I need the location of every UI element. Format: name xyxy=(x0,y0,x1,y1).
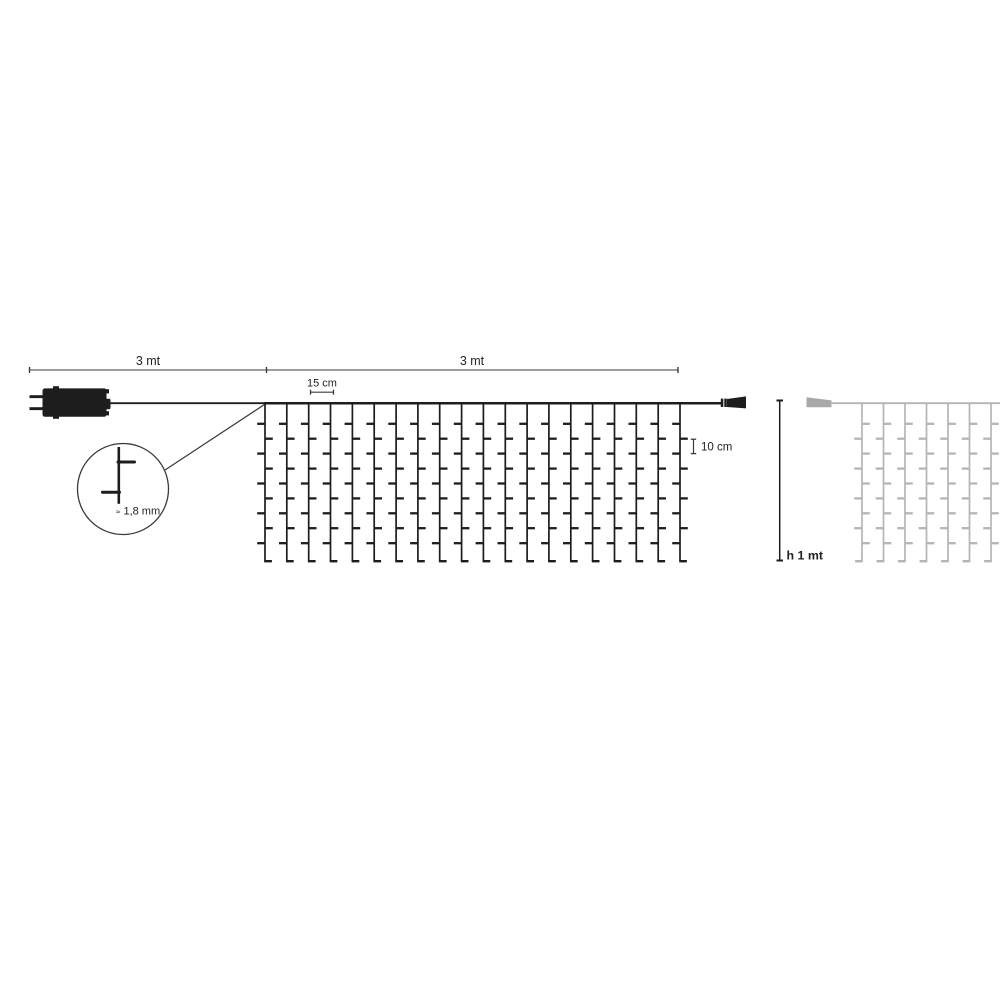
svg-text:h 1 mt: h 1 mt xyxy=(787,549,824,563)
svg-text:15 cm: 15 cm xyxy=(307,378,337,390)
svg-text:3 mt: 3 mt xyxy=(136,354,161,368)
svg-text:≈ 1,8 mm: ≈ 1,8 mm xyxy=(116,506,160,518)
svg-text:10 cm: 10 cm xyxy=(701,442,732,454)
svg-text:3 mt: 3 mt xyxy=(460,354,485,368)
